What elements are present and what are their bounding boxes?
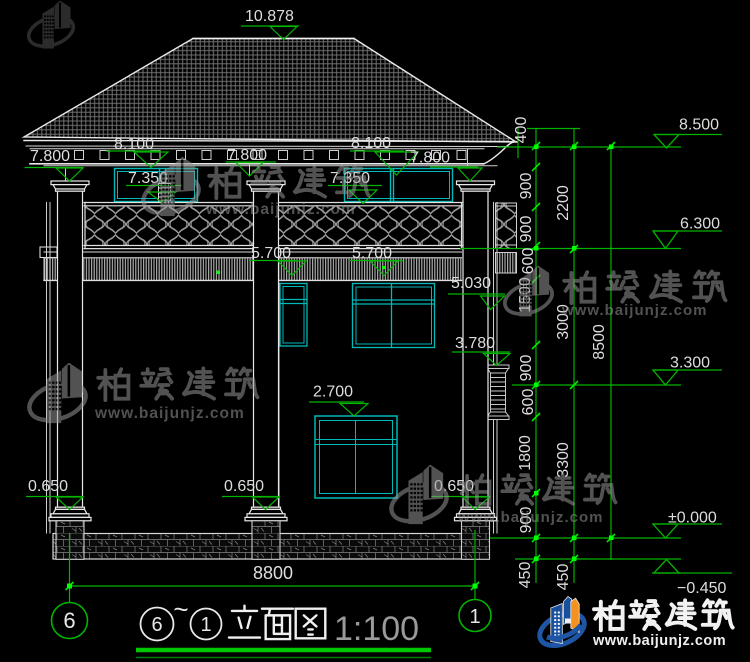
svg-text:~: ~	[173, 594, 188, 624]
svg-text:www.baijunjz.com: www.baijunjz.com	[561, 302, 707, 319]
svg-text:www.baijunjz.com: www.baijunjz.com	[457, 509, 603, 526]
svg-text:www.baijunjz.com: www.baijunjz.com	[205, 201, 356, 218]
svg-text:400: 400	[513, 117, 530, 144]
svg-text:2200: 2200	[555, 185, 572, 221]
svg-text:0.650: 0.650	[224, 478, 264, 495]
svg-text:3300: 3300	[555, 442, 572, 478]
svg-text:8800: 8800	[253, 563, 293, 583]
svg-text:1800: 1800	[517, 435, 534, 471]
svg-text:10.878: 10.878	[245, 8, 294, 25]
svg-text:900: 900	[518, 355, 535, 382]
svg-text:−0.450: −0.450	[677, 580, 726, 597]
svg-text:5.030: 5.030	[451, 275, 491, 292]
svg-text:8.100: 8.100	[351, 135, 391, 152]
svg-text:6.300: 6.300	[680, 216, 720, 233]
svg-text:6: 6	[151, 614, 162, 636]
svg-text:600: 600	[520, 389, 537, 416]
svg-text:1: 1	[469, 606, 480, 628]
svg-text:8.100: 8.100	[114, 136, 154, 153]
svg-text:8500: 8500	[591, 324, 608, 360]
svg-text:±0.000: ±0.000	[668, 510, 717, 527]
svg-text:www.baijunjz.com: www.baijunjz.com	[94, 405, 245, 422]
svg-text:1:100: 1:100	[334, 610, 419, 648]
svg-text:2.700: 2.700	[313, 384, 353, 401]
svg-text:7.800: 7.800	[410, 150, 450, 167]
svg-text:3.780: 3.780	[455, 335, 495, 352]
svg-text:450: 450	[517, 562, 534, 589]
svg-text:900: 900	[518, 216, 535, 243]
svg-text:3.300: 3.300	[670, 355, 710, 372]
svg-text:7.800: 7.800	[30, 148, 70, 165]
svg-text:6: 6	[63, 608, 75, 633]
svg-text:5.700: 5.700	[251, 245, 291, 262]
svg-text:8.500: 8.500	[679, 117, 719, 134]
svg-text:7.800: 7.800	[227, 147, 267, 164]
svg-text:900: 900	[518, 173, 535, 200]
svg-text:0.650: 0.650	[28, 478, 68, 495]
svg-text:1: 1	[200, 614, 211, 636]
svg-text:www.baijunjz.com: www.baijunjz.com	[592, 633, 726, 649]
svg-text:450: 450	[555, 564, 572, 591]
svg-text:5.700: 5.700	[352, 245, 392, 262]
